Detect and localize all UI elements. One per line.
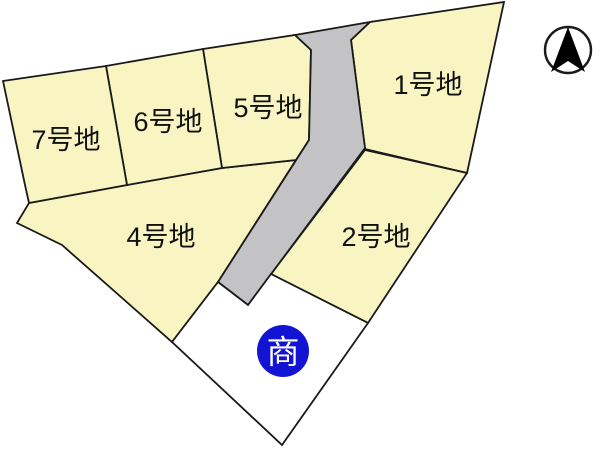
north-compass-icon [545, 27, 591, 73]
lot-4-label: 4号地 [126, 222, 195, 252]
commercial-badge-label: 商 [267, 334, 300, 371]
site-plan-map: 1号地2号地4号地5号地6号地7号地商 [0, 0, 600, 453]
lot-2-label: 2号地 [341, 222, 410, 252]
lot-6-label: 6号地 [133, 107, 202, 137]
lot-1-label: 1号地 [393, 70, 462, 100]
lot-5-label: 5号地 [233, 93, 302, 123]
lot-7-label: 7号地 [31, 125, 100, 155]
